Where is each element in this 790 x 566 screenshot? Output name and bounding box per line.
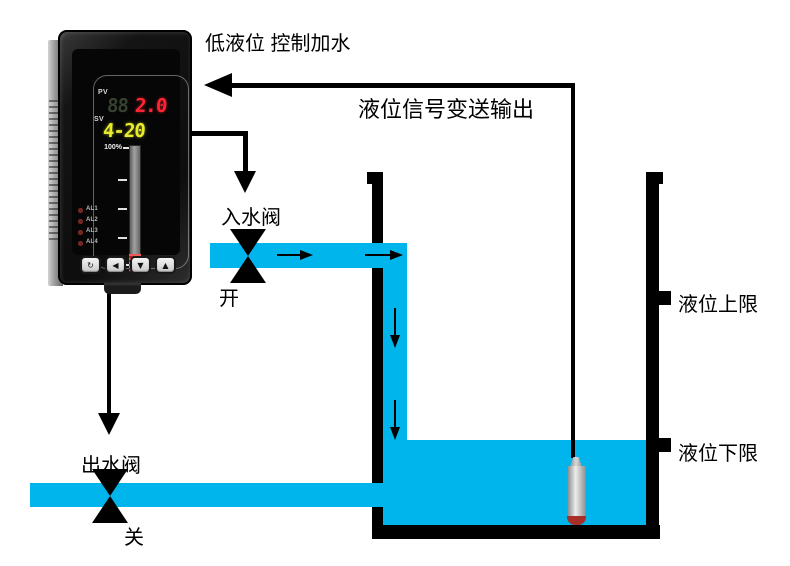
- up-arrow-icon: ▲: [162, 261, 168, 270]
- output-arrowhead-icon: [98, 413, 120, 435]
- alarm-led-label: AL1: [86, 206, 98, 212]
- bargraph-tick: [118, 179, 127, 181]
- tank-right-wall: [646, 172, 659, 538]
- level-controller: PV 88 2.0 SV 4-20 100% 0% AL1: [48, 28, 196, 294]
- down-arrow-icon: ▼: [137, 261, 143, 270]
- tank-bottom-wall: [372, 525, 660, 539]
- alarm-led-icon: [78, 230, 83, 235]
- lower-limit-tick: [657, 438, 671, 452]
- reset-icon: ↻: [87, 261, 94, 270]
- alarm-led-icon: [78, 219, 83, 224]
- upper-limit-label: 液位上限: [678, 288, 758, 317]
- control-arrowhead-icon: [234, 171, 256, 193]
- flow-arrow-right-icon: [365, 254, 391, 256]
- sv-label: SV: [94, 116, 104, 123]
- outlet-valve-state: 关: [124, 521, 144, 550]
- alarm-led-label: AL4: [86, 239, 98, 245]
- alarm-led-label: AL2: [86, 217, 98, 223]
- inlet-valve-icon: [230, 229, 266, 256]
- reset-button: ↻: [82, 258, 99, 272]
- inlet-valve-state: 开: [219, 282, 239, 311]
- bargraph-tick: [118, 208, 127, 210]
- shift-left-button: ◀: [107, 258, 124, 272]
- upper-limit-tick: [657, 291, 671, 305]
- sv-value: 4-20: [102, 120, 145, 142]
- signal-arrowhead-icon: [204, 73, 232, 97]
- sensor-cable: [571, 83, 575, 458]
- bargraph: [129, 145, 141, 272]
- outlet-valve-label: 出水阀: [81, 449, 141, 478]
- controller-front-panel: PV 88 2.0 SV 4-20 100% 0% AL1: [58, 30, 192, 285]
- tank-right-wall-rim: [646, 172, 663, 184]
- flow-arrow-right-icon: [390, 250, 403, 260]
- inlet-valve-label: 入水阀: [221, 201, 281, 230]
- control-line-horizontal: [192, 131, 248, 136]
- flow-arrow-down-icon: [394, 308, 396, 336]
- diagram-canvas: PV 88 2.0 SV 4-20 100% 0% AL1: [0, 0, 790, 566]
- flow-arrow-right-icon: [300, 250, 313, 260]
- tank-pool-water: [383, 440, 646, 525]
- diagram-title: 低液位 控制加水: [205, 27, 351, 56]
- controller-bottom-tab: [104, 283, 141, 294]
- alarm-led-icon: [78, 208, 83, 213]
- flow-arrow-down-icon: [394, 400, 396, 428]
- alarm-led-label: AL3: [86, 228, 98, 234]
- tank-left-wall-rim: [367, 172, 383, 184]
- inlet-valve-icon: [230, 256, 266, 283]
- controller-display: PV 88 2.0 SV 4-20 100% 0% AL1: [72, 49, 180, 255]
- control-line-vertical: [243, 131, 248, 172]
- flow-arrow-down-icon: [390, 427, 400, 440]
- pv-ghost-digits: 88: [106, 95, 128, 117]
- level-sensor-body: [567, 466, 586, 516]
- signal-line-horizontal: [230, 83, 575, 88]
- pv-value: 2.0: [134, 95, 167, 117]
- bargraph-tick: [118, 237, 127, 239]
- decrement-button: ▼: [132, 258, 149, 272]
- output-line-vertical: [107, 292, 111, 414]
- outlet-pipe-water: [30, 483, 383, 507]
- left-arrow-icon: ◀: [112, 261, 118, 270]
- flow-arrow-right-icon: [277, 254, 301, 256]
- pv-label: PV: [98, 89, 108, 96]
- tank-left-wall-middle: [372, 268, 383, 483]
- lower-limit-label: 液位下限: [678, 437, 758, 466]
- increment-button: ▲: [157, 258, 174, 272]
- outlet-valve-icon: [92, 496, 128, 523]
- flow-arrow-down-icon: [390, 335, 400, 348]
- bargraph-top-label: 100%: [96, 144, 129, 151]
- alarm-led-icon: [78, 241, 83, 246]
- signal-arrow-label: 液位信号变送输出: [358, 92, 534, 124]
